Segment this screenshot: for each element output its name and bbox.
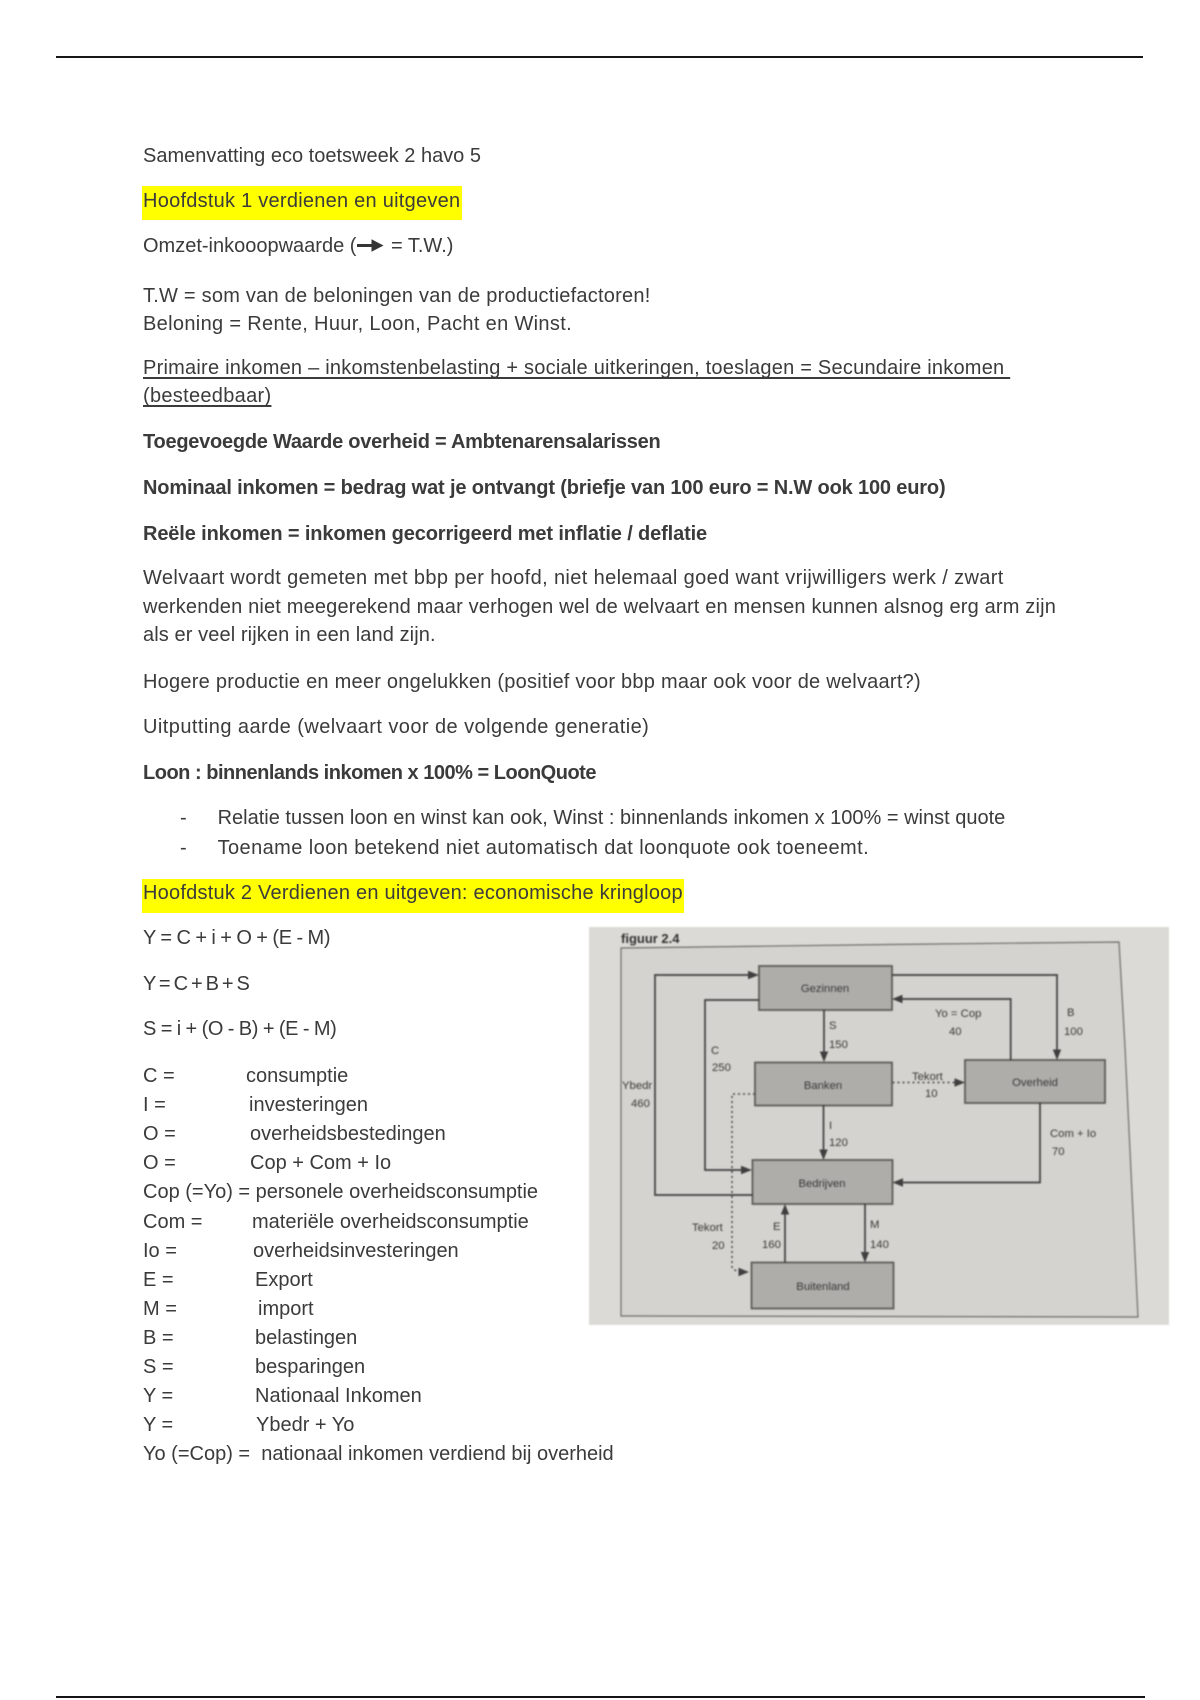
svg-text:460: 460 — [631, 1098, 650, 1110]
svg-text:S: S — [829, 1020, 837, 1032]
svg-text:150: 150 — [829, 1039, 848, 1051]
svg-text:figuur 2.4: figuur 2.4 — [621, 931, 680, 946]
svg-text:Banken: Banken — [804, 1080, 842, 1092]
svg-text:M: M — [870, 1219, 879, 1231]
svg-text:Bedrijven: Bedrijven — [798, 1178, 845, 1190]
svg-text:I: I — [829, 1120, 832, 1132]
svg-text:Gezinnen: Gezinnen — [801, 983, 849, 995]
svg-text:Ybedr: Ybedr — [622, 1080, 652, 1092]
svg-text:Com + Io: Com + Io — [1050, 1128, 1096, 1140]
svg-text:250: 250 — [712, 1062, 731, 1074]
svg-text:Tekort: Tekort — [692, 1222, 724, 1234]
svg-text:120: 120 — [829, 1137, 848, 1149]
svg-text:160: 160 — [762, 1239, 781, 1251]
svg-text:140: 140 — [870, 1239, 889, 1251]
svg-text:10: 10 — [925, 1088, 938, 1100]
svg-text:Tekort: Tekort — [912, 1071, 944, 1083]
svg-text:Yo = Cop: Yo = Cop — [935, 1008, 981, 1020]
svg-text:20: 20 — [712, 1240, 725, 1252]
svg-text:B: B — [1067, 1007, 1075, 1019]
svg-text:Overheid: Overheid — [1012, 1077, 1058, 1089]
svg-text:Buitenland: Buitenland — [796, 1281, 849, 1293]
svg-text:C: C — [711, 1045, 719, 1057]
svg-text:70: 70 — [1052, 1146, 1065, 1158]
svg-text:100: 100 — [1064, 1026, 1083, 1038]
svg-text:40: 40 — [949, 1026, 962, 1038]
svg-text:E: E — [773, 1221, 781, 1233]
